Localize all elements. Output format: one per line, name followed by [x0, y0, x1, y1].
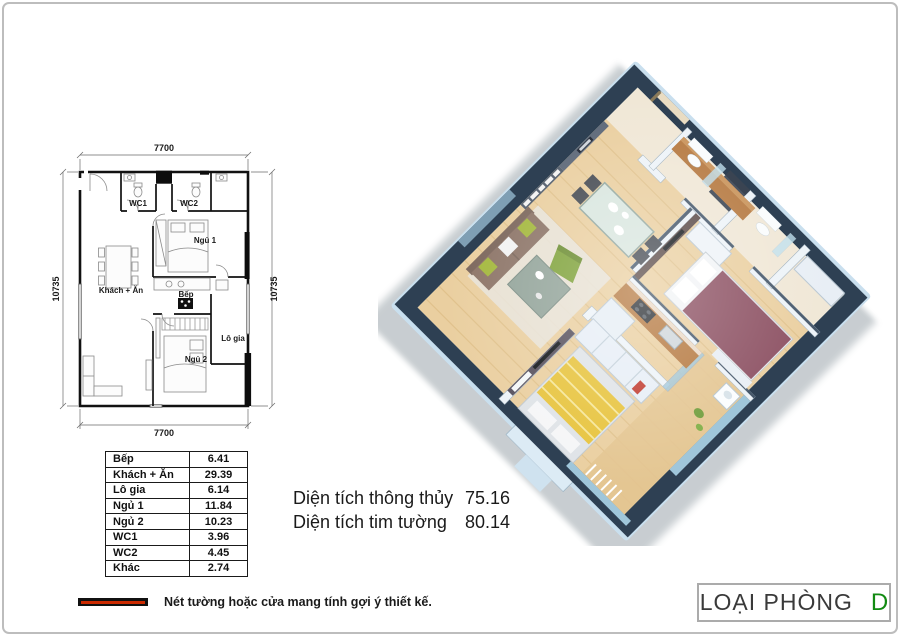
row-label: Ngủ 1 [106, 498, 190, 514]
row-label: Khác [106, 561, 190, 577]
room-label-khach-an: Khách + Ăn [99, 286, 143, 295]
row-value: 6.14 [190, 483, 248, 499]
room-label-ngu2: Ngủ 2 [185, 355, 208, 364]
room-type-box: LOẠI PHÒNG D [697, 583, 891, 622]
row-label: Lô gia [106, 483, 190, 499]
dim-bottom: 7700 [154, 428, 174, 438]
room-label-ngu1: Ngủ 1 [194, 236, 217, 245]
row-value: 3.96 [190, 529, 248, 545]
floorplan-sheet: 7700 7700 10735 10735 [0, 0, 900, 636]
row-value: 2.74 [190, 561, 248, 577]
legend: Nét tường hoặc cửa mang tính gợi ý thiết… [78, 595, 432, 609]
room-label-wc2: WC2 [180, 199, 198, 208]
dim-top: 7700 [154, 143, 174, 153]
table-row: Lô gia6.14 [106, 483, 248, 499]
table-row: Ngủ 111.84 [106, 498, 248, 514]
room-label-lo-gia: Lô gia [221, 334, 245, 343]
row-value: 11.84 [190, 498, 248, 514]
room-label-wc1: WC1 [129, 199, 147, 208]
table-row: Bếp6.41 [106, 452, 248, 468]
render-3d [378, 26, 898, 546]
table-row: WC24.45 [106, 545, 248, 561]
row-label: Bếp [106, 452, 190, 468]
row-value: 4.45 [190, 545, 248, 561]
row-value: 10.23 [190, 514, 248, 530]
legend-text: Nét tường hoặc cửa mang tính gợi ý thiết… [164, 595, 432, 609]
table-row: WC13.96 [106, 529, 248, 545]
row-label: Ngủ 2 [106, 514, 190, 530]
area-table: Bếp6.41 Khách + Ăn29.39 Lô gia6.14 Ngủ 1… [105, 451, 248, 577]
wall-line-swatch [78, 598, 148, 606]
table-row: Khác2.74 [106, 561, 248, 577]
floorplan-2d: 7700 7700 10735 10735 [50, 134, 290, 448]
table-row: Ngủ 210.23 [106, 514, 248, 530]
dim-right: 10735 [269, 276, 279, 301]
row-label: Khách + Ăn [106, 467, 190, 483]
room-type-label: LOẠI PHÒNG [700, 589, 853, 616]
row-label: WC1 [106, 529, 190, 545]
row-value: 6.41 [190, 452, 248, 468]
row-value: 29.39 [190, 467, 248, 483]
dim-left: 10735 [51, 276, 61, 301]
table-row: Khách + Ăn29.39 [106, 467, 248, 483]
room-label-bep: Bếp [178, 290, 193, 299]
row-label: WC2 [106, 545, 190, 561]
room-type-value: D [871, 589, 888, 617]
